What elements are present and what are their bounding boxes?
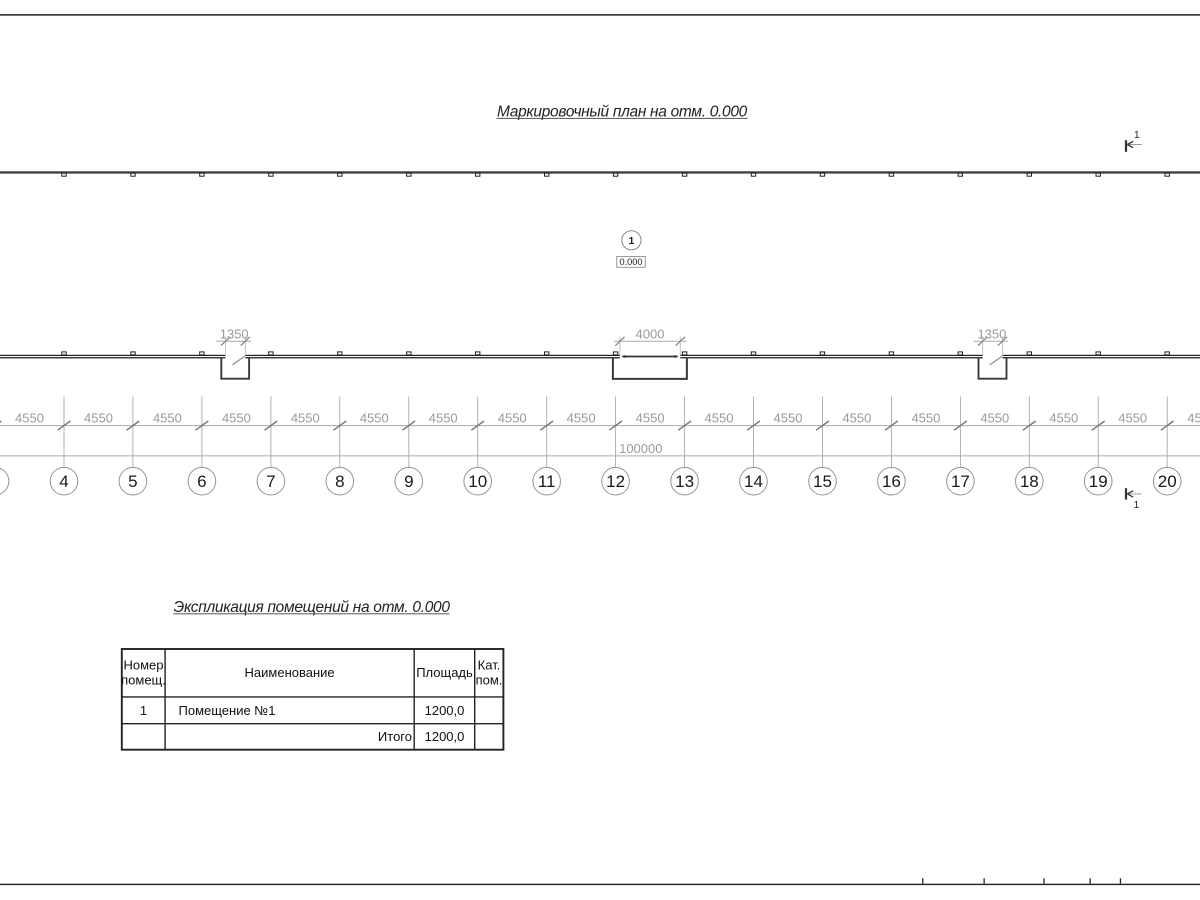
svg-text:4550: 4550: [1049, 410, 1078, 425]
svg-text:6: 6: [197, 472, 206, 491]
svg-text:помещ.: помещ.: [121, 672, 166, 687]
svg-text:4550: 4550: [84, 410, 113, 425]
svg-text:Кат.: Кат.: [478, 657, 501, 672]
svg-text:10: 10: [468, 472, 487, 491]
svg-text:1200,0: 1200,0: [425, 703, 465, 718]
svg-text:17: 17: [951, 472, 970, 491]
svg-text:1200,0: 1200,0: [425, 729, 465, 744]
svg-text:Площадь: Площадь: [416, 665, 473, 680]
svg-text:4000: 4000: [636, 327, 665, 342]
svg-text:4550: 4550: [15, 410, 44, 425]
svg-text:1: 1: [1133, 499, 1139, 511]
svg-text:12: 12: [606, 472, 625, 491]
svg-text:4550: 4550: [774, 410, 803, 425]
svg-text:4550: 4550: [911, 410, 940, 425]
svg-text:4550: 4550: [360, 410, 389, 425]
svg-text:15: 15: [813, 472, 832, 491]
svg-text:4550: 4550: [705, 410, 734, 425]
svg-text:4: 4: [59, 472, 68, 491]
svg-text:14: 14: [744, 472, 763, 491]
svg-text:Наименование: Наименование: [245, 665, 335, 680]
svg-text:4550: 4550: [498, 410, 527, 425]
svg-text:13: 13: [675, 472, 694, 491]
svg-text:18: 18: [1020, 472, 1039, 491]
svg-text:1: 1: [628, 235, 634, 247]
svg-text:5: 5: [128, 472, 137, 491]
svg-text:16: 16: [882, 472, 901, 491]
svg-text:19: 19: [1089, 472, 1108, 491]
svg-text:7: 7: [266, 472, 275, 491]
svg-text:Номер: Номер: [123, 657, 163, 672]
svg-text:4550: 4550: [1118, 410, 1147, 425]
svg-text:пом.: пом.: [476, 672, 503, 687]
svg-text:1350: 1350: [220, 327, 249, 342]
svg-text:4550: 4550: [842, 410, 871, 425]
svg-text:0.000: 0.000: [620, 257, 643, 267]
svg-text:11: 11: [538, 472, 556, 491]
svg-text:9: 9: [404, 472, 413, 491]
svg-text:4550: 4550: [636, 410, 665, 425]
svg-text:4550: 4550: [429, 410, 458, 425]
svg-text:Помещение №1: Помещение №1: [179, 703, 276, 718]
svg-text:1350: 1350: [977, 327, 1006, 342]
svg-text:4550: 4550: [980, 410, 1009, 425]
svg-text:1: 1: [1134, 129, 1140, 141]
svg-text:Итого: Итого: [378, 729, 412, 744]
svg-text:1: 1: [140, 703, 147, 718]
svg-text:20: 20: [1158, 472, 1177, 491]
svg-text:4550: 4550: [291, 410, 320, 425]
svg-text:Экспликация помещений на отм.: Экспликация помещений на отм. 0.000: [174, 599, 451, 616]
svg-text:4550: 4550: [567, 410, 596, 425]
svg-text:4550: 4550: [153, 410, 182, 425]
svg-text:4550: 4550: [222, 410, 251, 425]
svg-text:100000: 100000: [619, 441, 662, 456]
svg-text:4550: 4550: [1187, 410, 1200, 425]
svg-text:8: 8: [335, 472, 344, 491]
